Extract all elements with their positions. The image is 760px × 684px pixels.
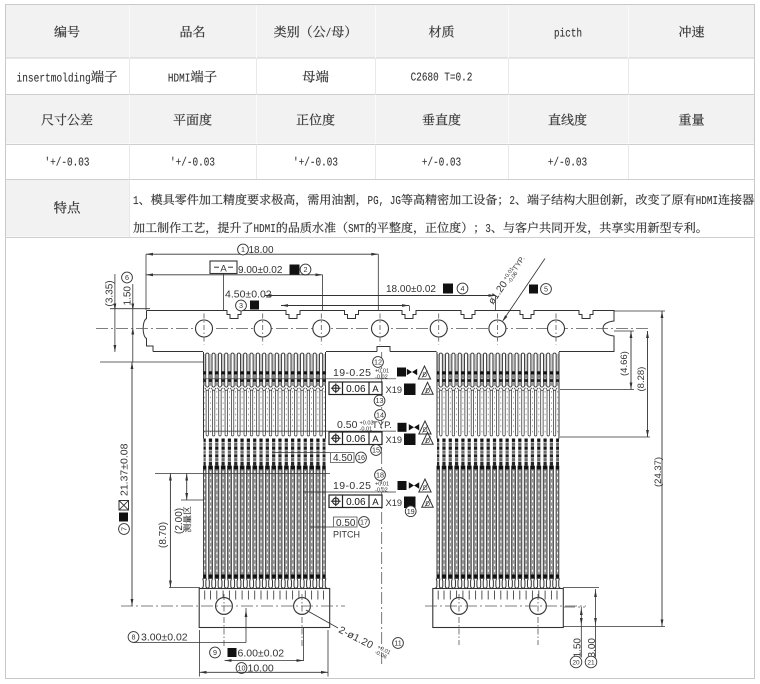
svg-text:(8.70): (8.70) [158,522,169,548]
svg-text:16: 16 [357,453,365,462]
svg-text:9: 9 [213,648,217,657]
svg-text:(4.66): (4.66) [619,351,630,376]
svg-text:0.06: 0.06 [346,434,366,445]
svg-text:3.00: 3.00 [587,638,598,658]
svg-text:(8.28): (8.28) [636,367,647,392]
svg-text:A: A [220,264,227,275]
svg-text:3: 3 [239,301,243,310]
svg-text:4.50: 4.50 [333,453,353,464]
svg-text:1.50: 1.50 [573,638,584,658]
svg-text:21: 21 [587,660,595,667]
svg-text:TYP.: TYP. [372,420,392,431]
svg-text:19-0.25: 19-0.25 [333,480,371,492]
svg-text:6.00±0.02: 6.00±0.02 [238,648,285,660]
svg-text:17: 17 [360,518,368,527]
svg-text:19-0.25: 19-0.25 [333,367,371,379]
svg-text:8: 8 [132,633,136,642]
svg-text:10: 10 [238,664,246,673]
svg-text:11: 11 [394,639,401,648]
svg-text:2: 2 [304,265,308,274]
svg-text:18.00±0.02: 18.00±0.02 [386,284,436,295]
svg-text:X19: X19 [386,498,403,508]
svg-text:X19: X19 [386,435,403,445]
svg-text:X19: X19 [386,385,403,395]
svg-text:PITCH: PITCH [333,530,360,540]
svg-text:18.00: 18.00 [249,245,274,256]
svg-text:4: 4 [461,284,465,293]
svg-text:0.06: 0.06 [346,497,366,508]
svg-text:0.50: 0.50 [337,419,358,431]
svg-text:13: 13 [376,396,384,405]
svg-text:4.50±0.02: 4.50±0.02 [225,289,272,301]
svg-text:7: 7 [120,527,129,531]
svg-text:19: 19 [407,507,415,516]
svg-text:-0.02: -0.02 [375,374,388,380]
svg-text:21.37±0.08: 21.37±0.08 [119,443,131,496]
svg-text:0.50: 0.50 [336,518,356,529]
svg-text:6: 6 [125,273,129,282]
svg-text:(24.37): (24.37) [653,457,664,487]
svg-text:-0.02: -0.02 [375,487,388,493]
svg-text:20: 20 [572,660,580,667]
svg-text:(3.35): (3.35) [105,280,116,306]
svg-text:3.00±0.02: 3.00±0.02 [141,632,188,644]
svg-text:14: 14 [376,411,384,420]
svg-text:0.06: 0.06 [346,384,366,395]
svg-text:A: A [372,434,379,445]
svg-text:(2.00): (2.00) [174,508,185,534]
svg-text:A: A [372,497,379,508]
svg-text:15: 15 [372,446,380,455]
svg-text:18: 18 [376,471,384,480]
svg-text:1: 1 [241,245,245,254]
svg-text:5: 5 [544,285,548,294]
svg-text:A: A [372,384,379,395]
svg-text:1.50: 1.50 [123,286,134,306]
svg-text:12: 12 [374,358,382,367]
